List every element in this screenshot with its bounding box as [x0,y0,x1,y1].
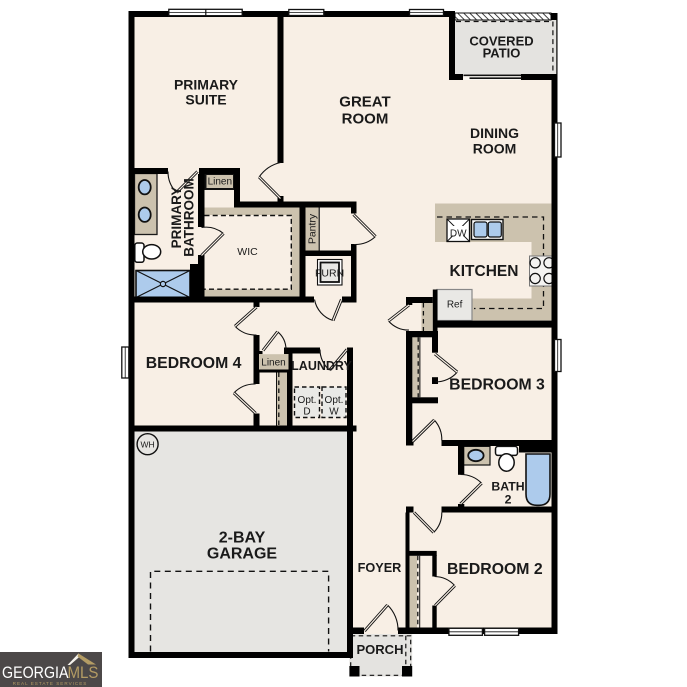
svg-text:Linen: Linen [208,177,232,188]
svg-text:2-BAY: 2-BAY [219,530,266,547]
svg-text:ROOM: ROOM [473,141,517,157]
svg-text:KITCHEN: KITCHEN [450,263,519,280]
svg-text:Opt.: Opt. [325,395,344,406]
svg-text:Linen: Linen [261,358,285,369]
svg-text:SUITE: SUITE [185,91,226,107]
svg-text:Ref: Ref [447,300,463,311]
svg-text:PRIMARY: PRIMARY [174,77,239,93]
svg-text:DW: DW [450,229,467,240]
svg-text:BATHROOM: BATHROOM [182,178,197,257]
svg-text:ROOM: ROOM [342,110,389,127]
svg-text:PORCH: PORCH [357,642,404,657]
svg-text:W: W [329,407,339,418]
svg-text:GARAGE: GARAGE [207,546,278,563]
svg-text:D: D [303,407,310,418]
svg-text:FURN: FURN [315,268,344,280]
svg-text:WIC: WIC [237,246,258,258]
svg-text:PATIO: PATIO [483,45,521,60]
svg-text:Pantry: Pantry [307,213,319,244]
svg-text:BATH: BATH [491,480,524,494]
svg-text:BEDROOM 4: BEDROOM 4 [146,355,242,372]
svg-text:BEDROOM 3: BEDROOM 3 [449,377,545,394]
svg-text:Opt.: Opt. [298,395,317,406]
svg-text:GREAT: GREAT [339,94,390,111]
svg-text:MLS: MLS [68,664,99,682]
svg-text:FOYER: FOYER [358,561,402,575]
svg-text:WH: WH [141,440,155,450]
svg-text:GEORGIA: GEORGIA [2,664,69,682]
svg-text:LAUNDRY: LAUNDRY [291,359,352,373]
svg-text:BEDROOM 2: BEDROOM 2 [447,561,543,578]
svg-text:DINING: DINING [470,125,519,141]
svg-text:REAL ESTATE SERVICES: REAL ESTATE SERVICES [13,681,88,686]
svg-text:2: 2 [505,493,512,507]
